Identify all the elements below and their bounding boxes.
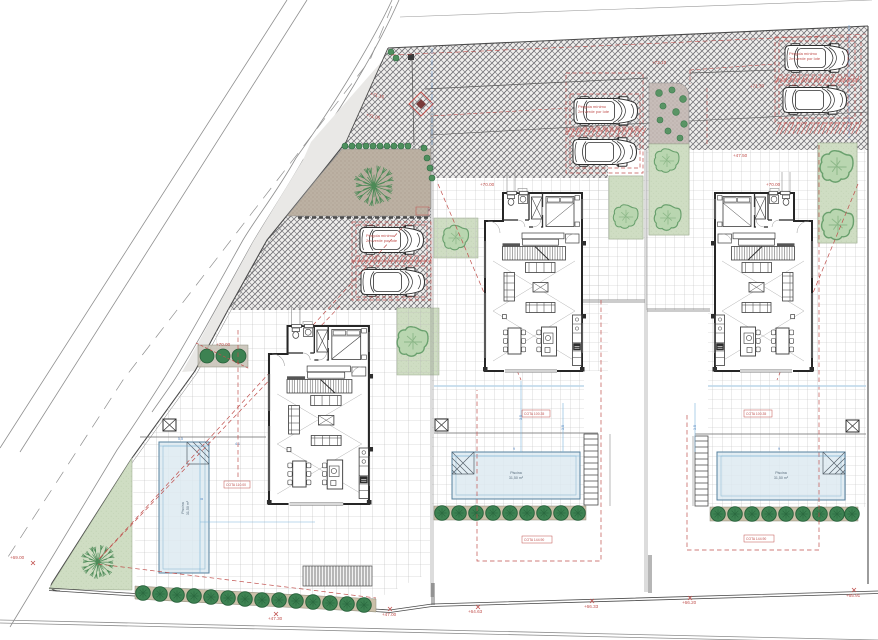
svg-text:+70.00: +70.00 <box>216 342 231 347</box>
svg-text:+66.33: +66.33 <box>584 604 599 609</box>
svg-text:Piscina: Piscina <box>775 471 787 475</box>
svg-text:+70.00: +70.00 <box>480 182 495 187</box>
svg-text:3.5: 3.5 <box>693 425 697 430</box>
svg-text:5.5: 5.5 <box>178 437 183 441</box>
svg-text:Piscina: Piscina <box>181 502 185 514</box>
svg-text:9: 9 <box>513 447 515 451</box>
svg-text:+65.91: +65.91 <box>846 593 861 598</box>
svg-text:3.5: 3.5 <box>561 425 565 430</box>
svg-text:Piscina: Piscina <box>510 471 522 475</box>
svg-text:COTA 100.35: COTA 100.35 <box>746 412 766 416</box>
svg-text:+64.63: +64.63 <box>468 609 483 614</box>
svg-text:31,50 m²: 31,50 m² <box>774 476 789 480</box>
svg-text:COTA 110.00: COTA 110.00 <box>226 483 246 487</box>
svg-text:31,50 m²: 31,50 m² <box>186 500 190 515</box>
svg-text:+47.30: +47.30 <box>268 616 283 621</box>
svg-text:9: 9 <box>778 447 780 451</box>
svg-text:2m verde por lote: 2m verde por lote <box>578 109 610 114</box>
svg-text:COTA 100.35: COTA 100.35 <box>524 412 544 416</box>
svg-text:COTA 144.90: COTA 144.90 <box>746 537 766 541</box>
svg-text:8: 8 <box>200 498 204 500</box>
svg-text:2m verde por lote: 2m verde por lote <box>789 56 821 61</box>
svg-text:+72.10: +72.10 <box>652 60 667 65</box>
svg-text:+47.00: +47.00 <box>382 612 397 617</box>
svg-text:+47.50: +47.50 <box>733 153 748 158</box>
svg-text:+70.00: +70.00 <box>766 182 781 187</box>
svg-text:4.1: 4.1 <box>235 442 240 446</box>
svg-text:2m verde por lote: 2m verde por lote <box>366 238 398 243</box>
svg-text:+66.20: +66.20 <box>682 600 697 605</box>
svg-text:COTA 144.90: COTA 144.90 <box>524 538 544 542</box>
svg-text:+69.00: +69.00 <box>10 555 25 560</box>
svg-text:31,50 m²: 31,50 m² <box>509 476 524 480</box>
svg-text:+71.30: +71.30 <box>750 83 765 89</box>
svg-text:3.5: 3.5 <box>519 415 523 420</box>
